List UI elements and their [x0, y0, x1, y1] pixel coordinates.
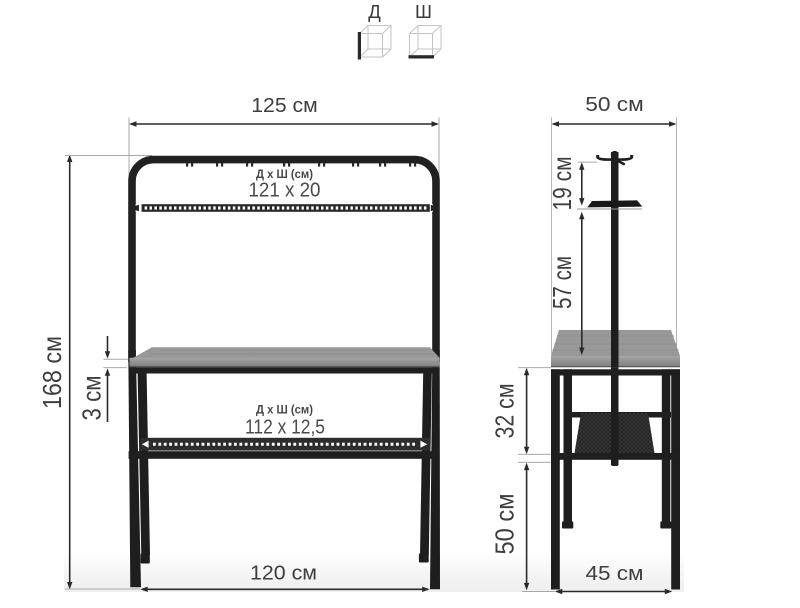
svg-text:121 х 20: 121 х 20: [249, 180, 321, 202]
svg-text:3 см: 3 см: [77, 376, 107, 421]
svg-text:50 см: 50 см: [585, 93, 644, 116]
svg-text:45 см: 45 см: [586, 562, 644, 585]
svg-text:57 см: 57 см: [547, 256, 577, 309]
svg-text:120 см: 120 см: [250, 562, 317, 585]
svg-text:112 х 12,5: 112 х 12,5: [245, 417, 325, 439]
svg-text:Д: Д: [368, 1, 381, 22]
svg-text:125 см: 125 см: [251, 94, 318, 117]
svg-text:Ш: Ш: [415, 1, 432, 22]
svg-text:32 см: 32 см: [490, 384, 520, 439]
svg-text:19 см: 19 см: [547, 157, 577, 211]
svg-text:50 см: 50 см: [490, 494, 520, 555]
svg-text:Д х Ш (см): Д х Ш (см): [256, 405, 313, 417]
svg-text:168 см: 168 см: [37, 336, 67, 409]
